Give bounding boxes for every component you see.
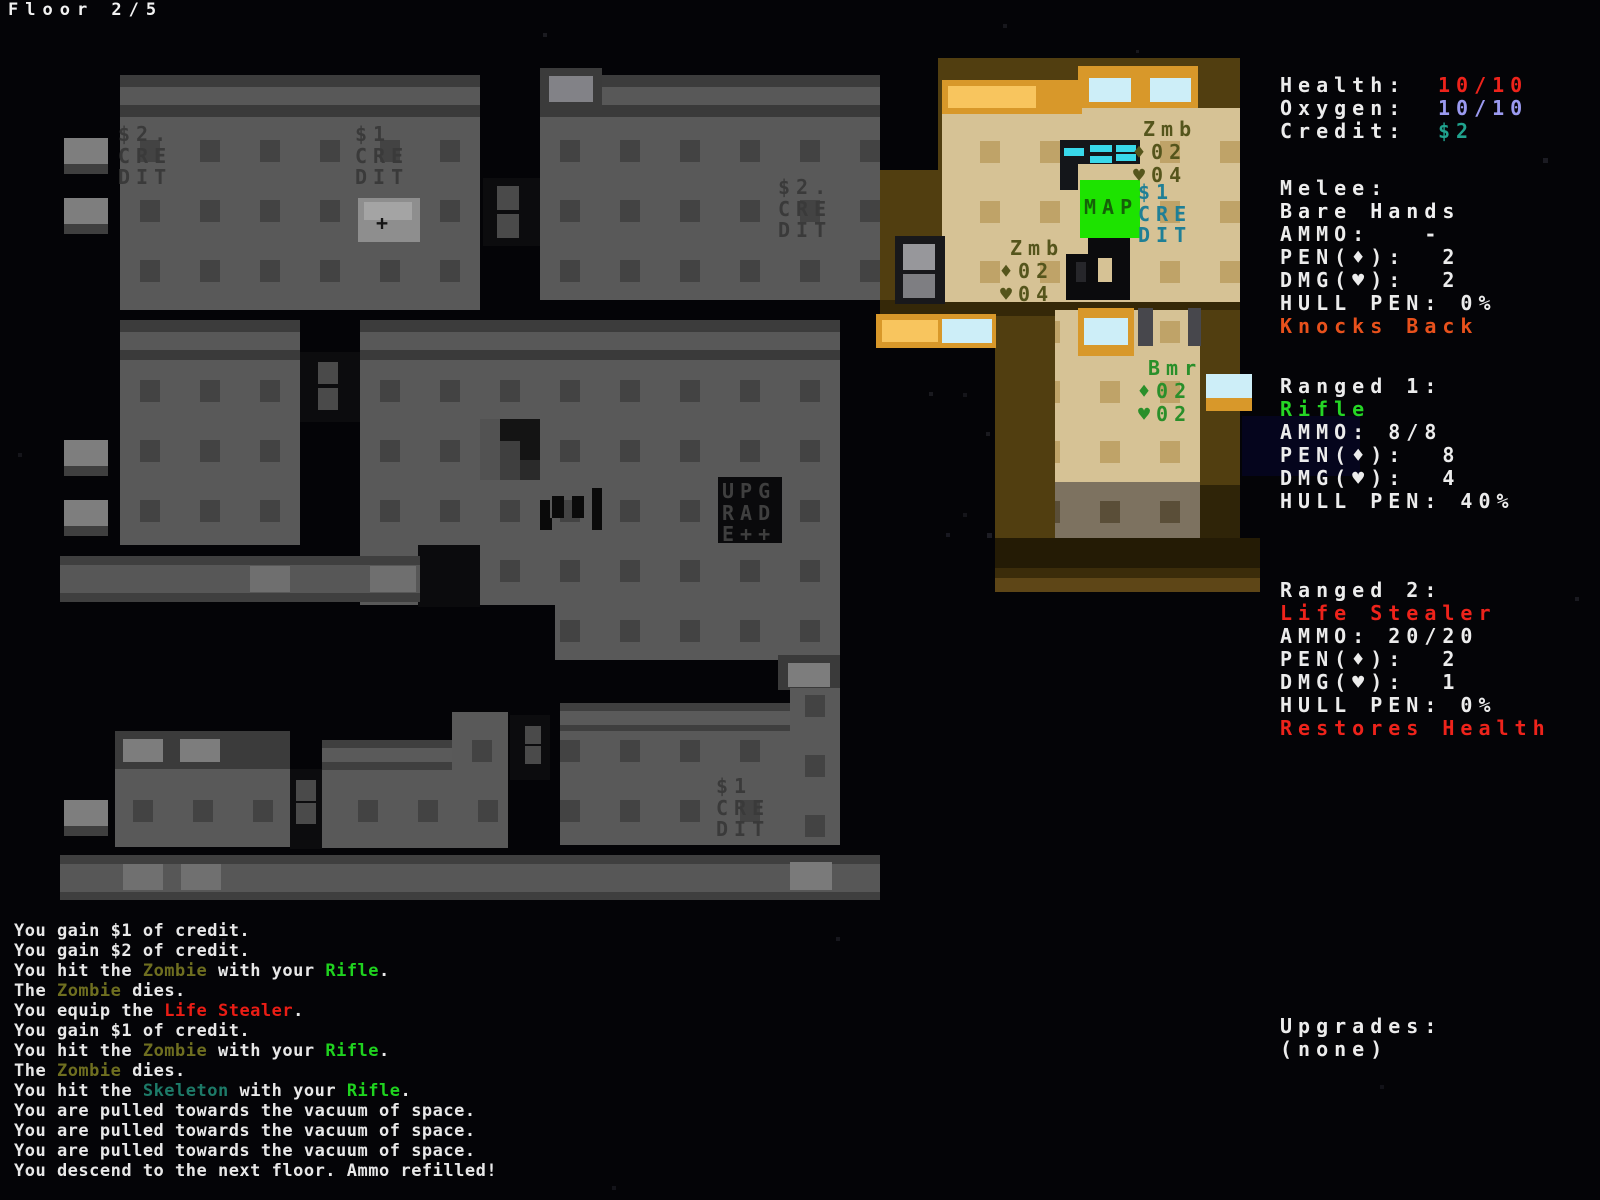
log-line: You are pulled towards the vacuum of spa… (14, 1101, 1014, 1121)
credit-item-1c[interactable]: $1CREDIT (1138, 182, 1192, 247)
boomer-1[interactable]: Bmr♦02♥02 (1138, 357, 1202, 426)
status-sidebar: Health:10/10Oxygen:10/10Credit:$2 Melee:… (1280, 0, 1600, 1200)
room-floor (790, 688, 840, 845)
upgrade-item-line: E++ (722, 524, 776, 546)
credit-item-1a-line: $1 (355, 124, 409, 146)
zombie-2-label: Zmb (1000, 237, 1064, 260)
corpse-remains (500, 441, 520, 480)
rifle-item-stripe (1090, 156, 1112, 163)
pistol-item (552, 496, 564, 518)
upgrade-item[interactable]: UPGRADE++ (722, 481, 776, 546)
melee-weapon-panel: Melee:Bare HandsAMMO: -PEN(♦): 2DMG(♥): … (1280, 176, 1600, 337)
room-floor (115, 769, 290, 847)
ranged2-weapon-trait: Restores Health (1280, 716, 1600, 739)
ranged2-weapon-stat-2: DMG(♥): 1 (1280, 670, 1600, 693)
zombie-2[interactable]: Zmb♦02♥04 (1000, 237, 1064, 306)
melee-weapon-stat-1: PEN(♦): 2 (1280, 245, 1600, 268)
credit-item-2a-line: DIT (118, 167, 172, 189)
zombie-1-pen: ♦02 (1133, 141, 1197, 164)
corridor-tile (181, 864, 221, 890)
zombie-1-label: Zmb (1133, 118, 1197, 141)
ranged1-weapon-panel: Ranged 1:RifleAMMO: 8/8PEN(♦): 8DMG(♥): … (1280, 374, 1600, 512)
ranged2-weapon-panel: Ranged 2:Life StealerAMMO: 20/20PEN(♦): … (1280, 578, 1600, 739)
ranged1-weapon-slot-label: Ranged 1: (1280, 374, 1600, 397)
corridor-tile (790, 862, 832, 890)
airlock-door-inner (882, 320, 938, 342)
ranged2-weapon-stat-3: HULL PEN: 0% (1280, 693, 1600, 716)
log-line: You gain $1 of credit. (14, 1021, 1014, 1041)
log-keyword-lifestealer: Life Stealer (164, 1001, 293, 1021)
boomer-1-hp: ♥02 (1138, 403, 1202, 426)
ranged2-weapon-name: Life Stealer (1280, 601, 1600, 624)
credit-item-1a-line: CRE (355, 146, 409, 168)
hatch-tile (549, 76, 593, 102)
upgrades-title: Upgrades: (1280, 1014, 1442, 1037)
credit-item-2b-line: DIT (778, 220, 832, 242)
hull-vent (64, 466, 108, 476)
window-glass (1150, 78, 1191, 102)
door-tiles (497, 214, 519, 238)
window-tile (123, 739, 163, 762)
map-item-label-line: MAP (1084, 197, 1138, 219)
corridor-tile (370, 566, 416, 592)
log-line: The Zombie dies. (14, 1061, 1014, 1081)
hull-vent (64, 198, 108, 224)
corridor-floor-dim (1055, 482, 1200, 538)
credit-item-1a[interactable]: $1CREDIT (355, 124, 409, 189)
hull-vent (64, 500, 108, 526)
boomer-1-label: Bmr (1138, 357, 1202, 380)
player-character-detail (1098, 258, 1112, 282)
window-glass (1089, 78, 1131, 102)
credit-stat: Credit:$2 (1280, 119, 1528, 142)
hull-vent (64, 826, 108, 836)
health-stat-value: 10/10 (1438, 73, 1528, 97)
corridor-tile (250, 566, 290, 592)
player-character-detail (1076, 262, 1086, 282)
game-screen: Floor 2/5 (0, 0, 1600, 1200)
room-wall (120, 75, 480, 117)
hull-vent (64, 164, 108, 174)
door-tiles (296, 803, 316, 824)
stats-panel: Health:10/10Oxygen:10/10Credit:$2 (1280, 73, 1528, 142)
credit-item-1b-line: DIT (716, 819, 770, 841)
pistol-item (540, 500, 550, 520)
hull-vent (64, 224, 108, 234)
room-floor (322, 770, 508, 848)
door-post (1188, 308, 1201, 346)
window-glass (1206, 374, 1252, 398)
credit-item-1c-line: DIT (1138, 225, 1192, 247)
room-wall (360, 320, 840, 360)
credit-item-2b-line: CRE (778, 199, 832, 221)
ranged2-weapon-stat-0: AMMO: 20/20 (1280, 624, 1600, 647)
door-tiles (903, 244, 935, 270)
zombie-1-hp: ♥04 (1133, 164, 1197, 187)
melee-weapon-name: Bare Hands (1280, 199, 1600, 222)
log-keyword-skeleton: Skeleton (143, 1081, 229, 1101)
ranged1-weapon-stat-0: AMMO: 8/8 (1280, 420, 1600, 443)
door-tiles (903, 274, 935, 298)
corridor-tile (123, 864, 163, 890)
room-floor (120, 360, 300, 545)
log-line: You gain $1 of credit. (14, 921, 1014, 941)
credit-item-2b-line: $2. (778, 177, 832, 199)
upgrades-panel: Upgrades: (none) (1280, 1014, 1442, 1060)
log-keyword-zombie: Zombie (143, 961, 207, 981)
log-line: The Zombie dies. (14, 981, 1014, 1001)
log-line: You are pulled towards the vacuum of spa… (14, 1141, 1014, 1161)
oxygen-stat-value: 10/10 (1438, 96, 1528, 120)
floor-hole (418, 545, 480, 607)
log-line: You gain $2 of credit. (14, 941, 1014, 961)
map-item-label[interactable]: MAP (1084, 197, 1138, 219)
room-wall (322, 740, 452, 770)
log-line: You hit the Zombie with your Rifle. (14, 1041, 1014, 1061)
corridor (60, 556, 420, 602)
log-keyword-zombie: Zombie (57, 1061, 121, 1081)
pistol-item (572, 496, 584, 518)
log-keyword-zombie: Zombie (57, 981, 121, 1001)
room-floor (555, 605, 840, 660)
credit-stat-value: $2 (1438, 119, 1474, 143)
log-keyword-rifle: Rifle (325, 1041, 379, 1061)
door-tiles (296, 780, 316, 801)
oxygen-stat-label: Oxygen: (1280, 96, 1438, 120)
ranged1-weapon-stat-2: DMG(♥): 4 (1280, 466, 1600, 489)
door-tiles (525, 746, 541, 764)
credit-item-2a-line: $2. (118, 124, 172, 146)
airlock-door-inner (948, 86, 1036, 108)
ranged2-weapon-stat-1: PEN(♦): 2 (1280, 647, 1600, 670)
credit-item-2a-line: CRE (118, 146, 172, 168)
hull-vent (64, 800, 108, 826)
upgrade-item-line: UPG (722, 481, 776, 503)
credit-item-1c-line: CRE (1138, 204, 1192, 226)
door-tiles (318, 362, 338, 384)
hull-vent (64, 440, 108, 466)
credit-item-1b-line: CRE (716, 798, 770, 820)
health-stat-label: Health: (1280, 73, 1438, 97)
log-keyword-zombie: Zombie (143, 1041, 207, 1061)
log-line: You hit the Skeleton with your Rifle. (14, 1081, 1014, 1101)
zombie-2-hp: ♥04 (1000, 283, 1064, 306)
message-log: You gain $1 of credit.You gain $2 of cre… (14, 921, 1014, 1181)
melee-weapon-stat-2: DMG(♥): 2 (1280, 268, 1600, 291)
oxygen-stat: Oxygen:10/10 (1280, 96, 1528, 119)
melee-weapon-slot-label: Melee: (1280, 176, 1600, 199)
credit-item-2b[interactable]: $2.CREDIT (778, 177, 832, 242)
door-tiles (497, 186, 519, 210)
health-stat: Health:10/10 (1280, 73, 1528, 96)
log-keyword-rifle: Rifle (347, 1081, 401, 1101)
door-post (1138, 308, 1153, 346)
credit-item-1b-line: $1 (716, 776, 770, 798)
hull-vent (64, 138, 108, 164)
hatch-tile (788, 663, 830, 687)
rifle-item-stripe (1064, 148, 1084, 156)
window-tile (180, 739, 220, 762)
ranged1-weapon-stat-3: HULL PEN: 40% (1280, 489, 1600, 512)
medkit-plus-item[interactable]: + (376, 213, 394, 235)
medkit-plus-item-line: + (376, 213, 394, 235)
door-tiles (318, 388, 338, 410)
hull-band (995, 538, 1260, 568)
log-line: You are pulled towards the vacuum of spa… (14, 1121, 1014, 1141)
boomer-1-pen: ♦02 (1138, 380, 1202, 403)
window-frame (1206, 398, 1252, 411)
melee-weapon-trait: Knocks Back (1280, 314, 1600, 337)
log-line: You equip the Life Stealer. (14, 1001, 1014, 1021)
credit-item-2a[interactable]: $2.CREDIT (118, 124, 172, 189)
zombie-1[interactable]: Zmb♦02♥04 (1133, 118, 1197, 187)
ranged1-weapon-stat-1: PEN(♦): 8 (1280, 443, 1600, 466)
melee-weapon-stat-0: AMMO: - (1280, 222, 1600, 245)
rifle-item-stripe (1090, 145, 1112, 152)
log-line: You hit the Zombie with your Rifle. (14, 961, 1014, 981)
room-wall (120, 320, 300, 360)
zombie-2-pen: ♦02 (1000, 260, 1064, 283)
corpse-remains (520, 460, 540, 480)
hull-vent (64, 526, 108, 536)
melee-weapon-stat-3: HULL PEN: 0% (1280, 291, 1600, 314)
ranged2-weapon-slot-label: Ranged 2: (1280, 578, 1600, 601)
pistol-item (540, 518, 552, 530)
hull-band (995, 568, 1260, 578)
pistol-item (592, 488, 602, 530)
credit-item-1b[interactable]: $1CREDIT (716, 776, 770, 841)
log-line: You descend to the next floor. Ammo refi… (14, 1161, 1014, 1181)
corpse-remains (480, 419, 500, 480)
log-keyword-rifle: Rifle (325, 961, 379, 981)
upgrades-value: (none) (1280, 1037, 1442, 1060)
room-floor (120, 117, 480, 310)
window-glass (942, 319, 992, 343)
credit-item-1a-line: DIT (355, 167, 409, 189)
window-glass (1084, 318, 1128, 345)
door-tiles (525, 726, 541, 744)
room-floor (452, 712, 508, 770)
upgrade-item-line: RAD (722, 503, 776, 525)
credit-stat-label: Credit: (1280, 119, 1438, 143)
rifle-item (1060, 164, 1078, 190)
ranged1-weapon-name: Rifle (1280, 397, 1600, 420)
hull-band (995, 578, 1260, 592)
